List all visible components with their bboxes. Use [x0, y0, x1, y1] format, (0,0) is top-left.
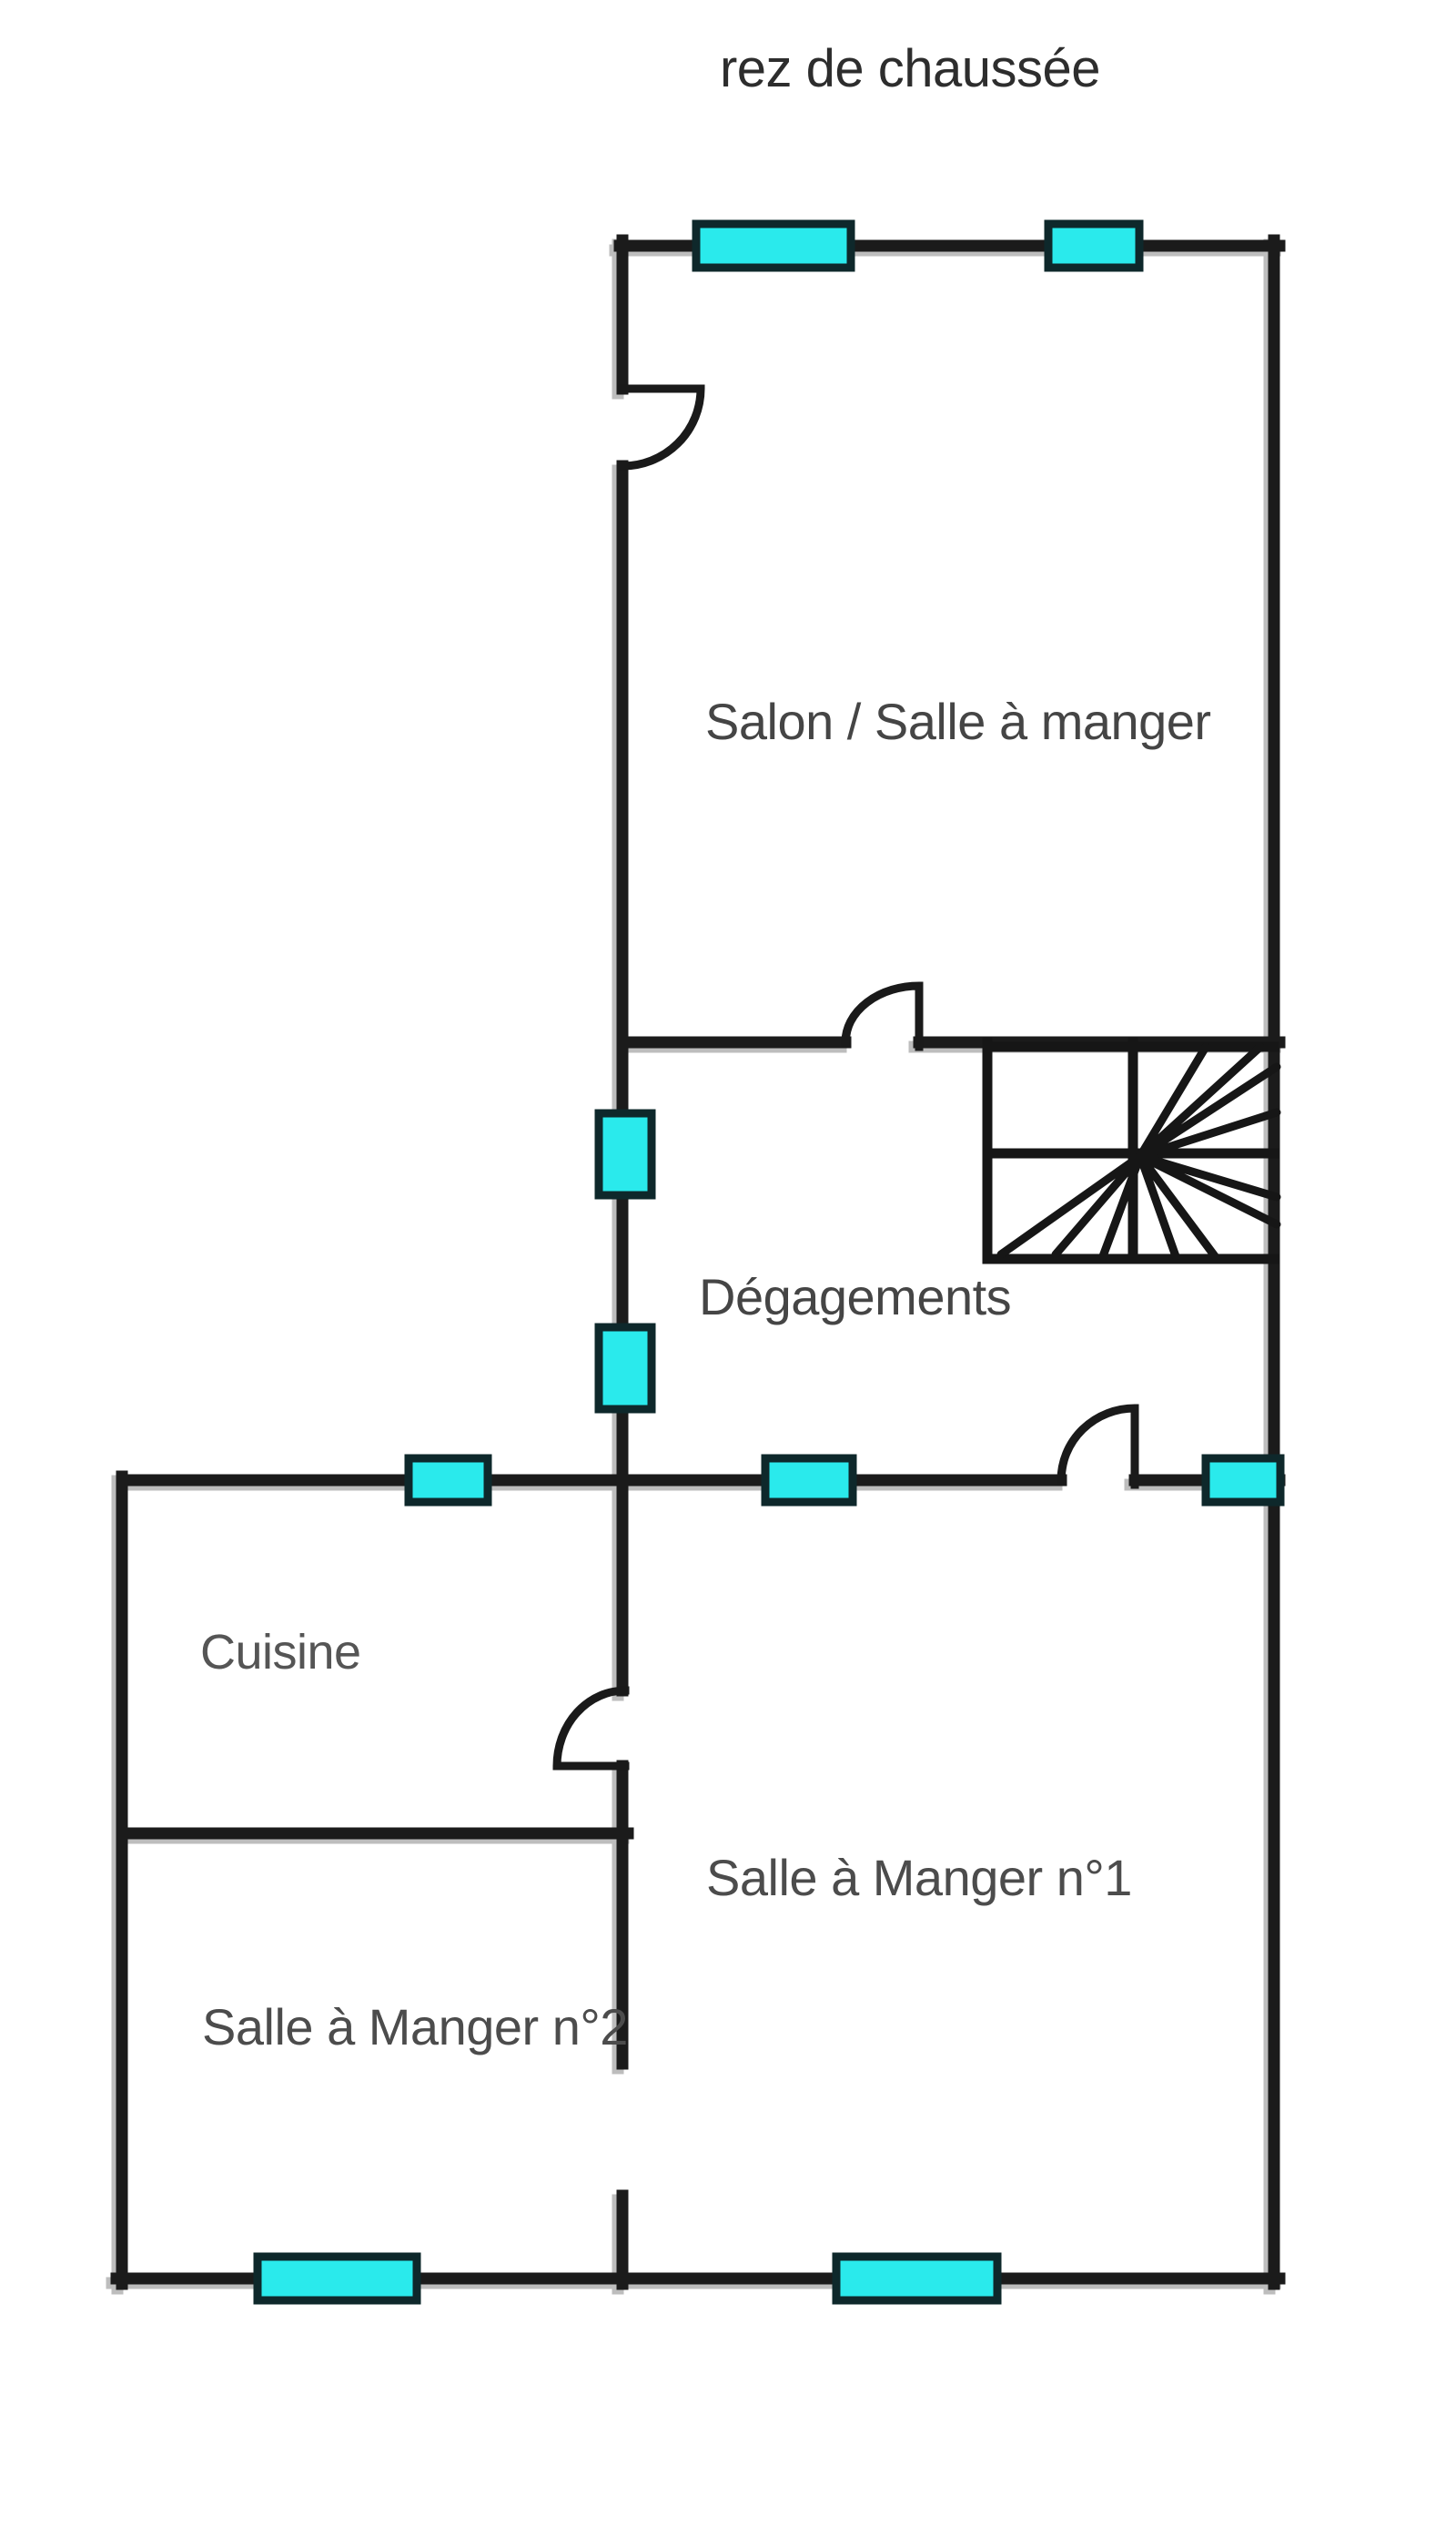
doors: [557, 389, 1135, 1766]
window-left-upper: [599, 1113, 652, 1195]
room-label-cuisine: Cuisine: [200, 1624, 361, 1680]
door-cuisine: [557, 1690, 625, 1766]
window-bottom-center: [836, 2257, 997, 2300]
room-label-degagements: Dégagements: [699, 1267, 1011, 1326]
window-middle-right: [1206, 1458, 1280, 1502]
walls-shadow: [112, 245, 1275, 2289]
floor-title: rez de chaussée: [637, 38, 1183, 99]
room-label-salle-a-manger-1: Salle à Manger n°1: [706, 1848, 1132, 1907]
door-salon-degagements: [845, 986, 919, 1047]
floor-plan-drawing: [0, 0, 1456, 2527]
door-salon-entry: [622, 389, 701, 466]
door-degagements-sam1: [1061, 1408, 1135, 1485]
window-bottom-left: [258, 2257, 417, 2300]
window-top-large: [696, 224, 851, 268]
window-middle-cuisine: [409, 1458, 488, 1502]
room-label-salle-a-manger-2: Salle à Manger n°2: [202, 1997, 628, 2056]
room-label-salon: Salon / Salle à manger: [705, 692, 1211, 751]
window-middle-center: [765, 1458, 853, 1502]
window-top-small: [1048, 224, 1139, 268]
floor-plan-page: { "title": "rez de chaussée", "rooms": […: [0, 0, 1456, 2527]
staircase: [987, 1042, 1277, 1259]
window-left-lower: [599, 1327, 652, 1409]
